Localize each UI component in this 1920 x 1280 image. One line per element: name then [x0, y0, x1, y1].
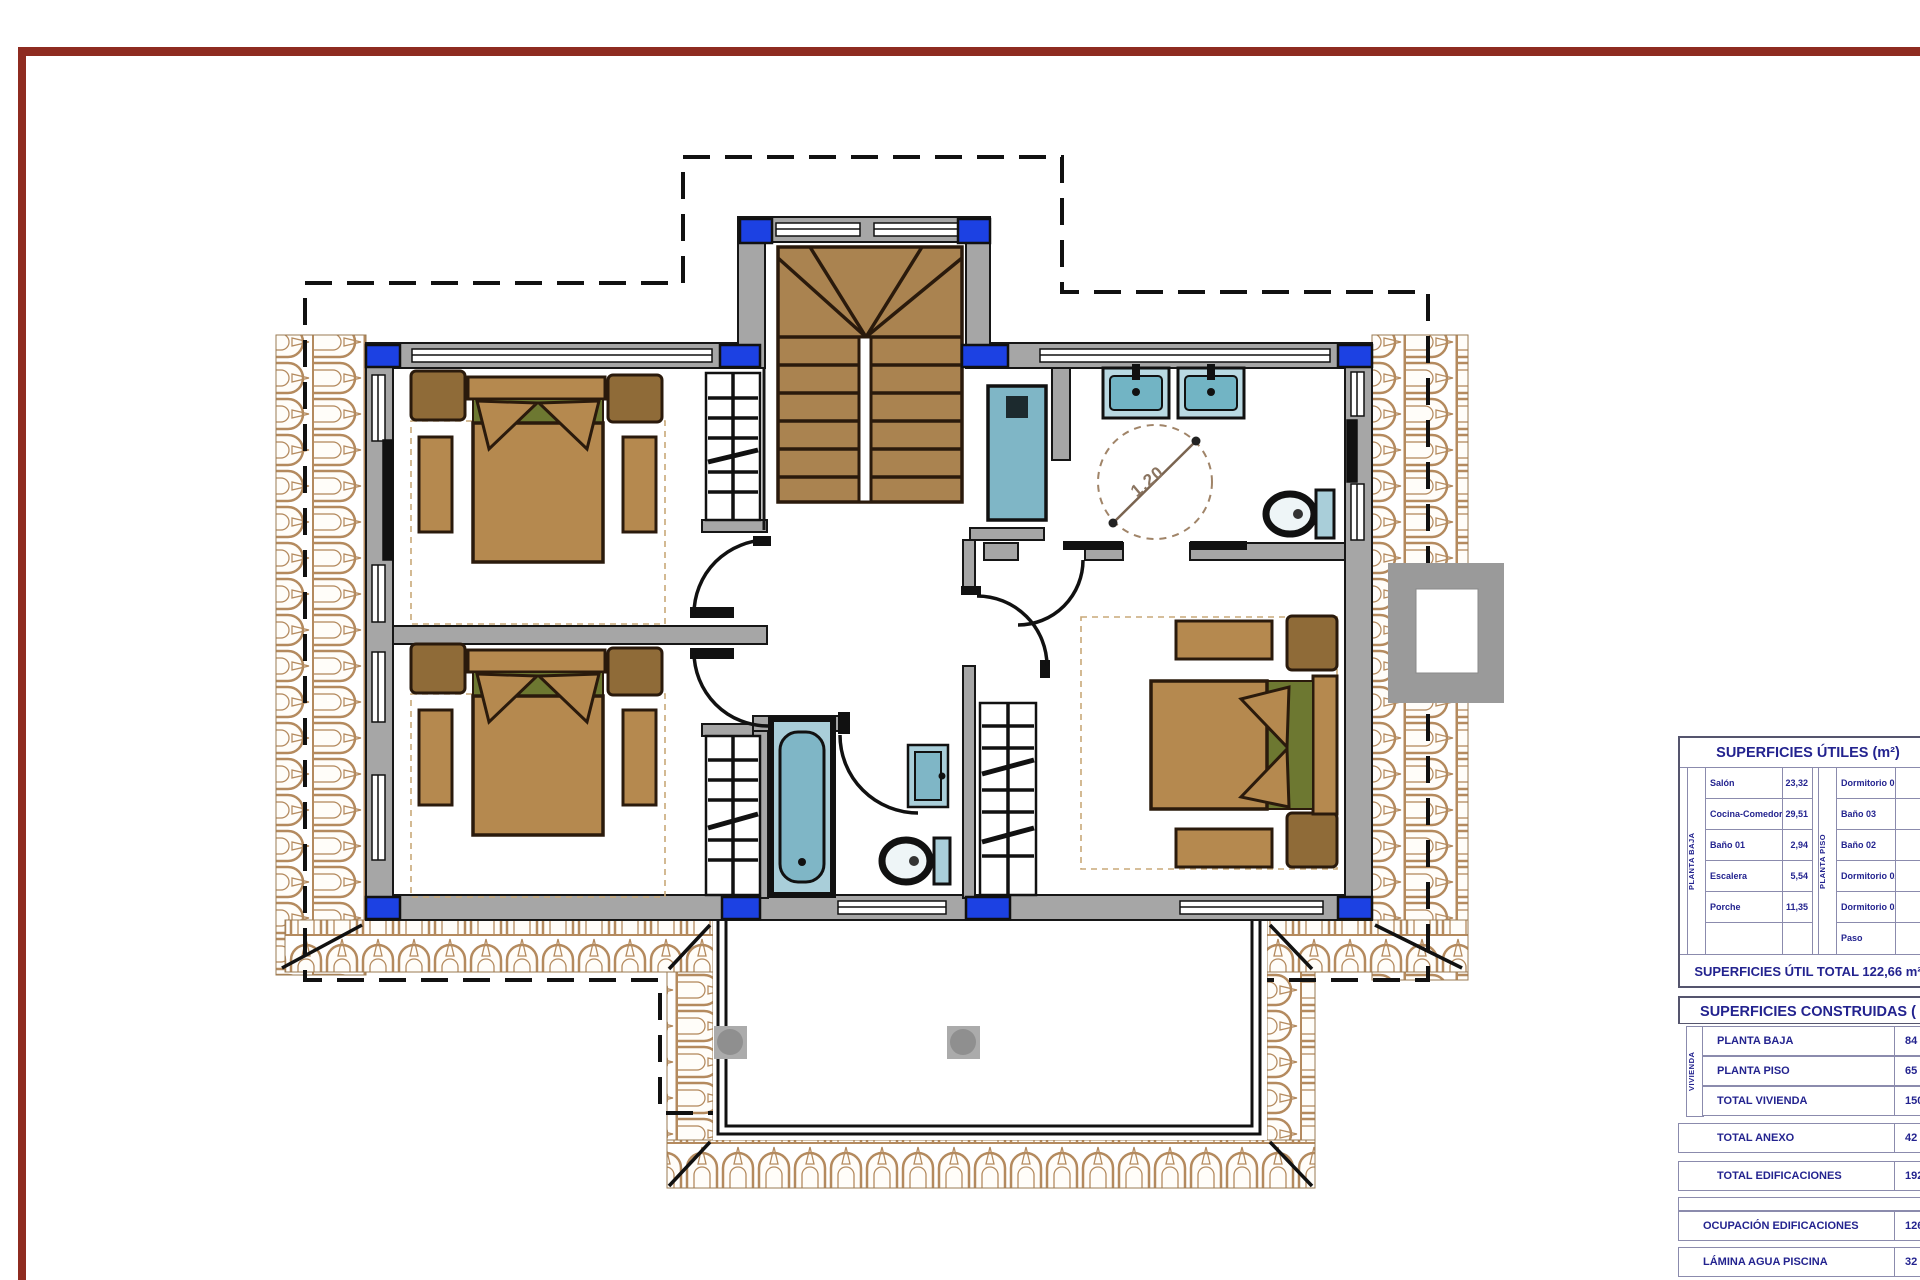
bed-dormitorio-02 [411, 371, 665, 624]
utiles-group-planta-baja: PLANTA BAJA [1687, 768, 1705, 954]
room-label: Dormitorio 03 [1836, 892, 1895, 923]
superficies-utiles-table: SUPERFICIES ÚTILES (m²) PLANTA BAJA PLAN… [1678, 736, 1920, 990]
construidas-row-value: 32 [1894, 1248, 1920, 1276]
construidas-row-label: LÁMINA AGUA PISCINA [1679, 1248, 1828, 1276]
utiles-total: SUPERFICIES ÚTIL TOTAL 122,66 m² [1680, 954, 1920, 989]
shower-tray [988, 386, 1046, 520]
porch-column [714, 1026, 747, 1059]
construidas-row-label: PLANTA PISO [1703, 1057, 1790, 1085]
wardrobe [706, 373, 760, 520]
utiles-group-planta-piso: PLANTA PISO [1818, 768, 1836, 954]
washbasin [908, 745, 948, 807]
construidas-row-value: 126 [1894, 1212, 1920, 1240]
room-area: 11,35 [1782, 892, 1812, 923]
utiles-title: SUPERFICIES ÚTILES (m²) [1680, 738, 1920, 768]
room-label: Baño 01 [1705, 830, 1782, 861]
construidas-row-label: TOTAL ANEXO [1679, 1124, 1794, 1152]
construidas-spacer-row [1678, 1197, 1920, 1211]
construidas-row-label: TOTAL VIVIENDA [1703, 1087, 1807, 1115]
turning-circle-annotation: 1.20 [1098, 425, 1212, 539]
construidas-row-label: TOTAL EDIFICACIONES [1679, 1162, 1842, 1190]
bed-dormitorio-03 [411, 644, 665, 897]
room-label: Porche [1705, 892, 1782, 923]
room-area: 23,32 [1782, 768, 1812, 799]
room-label: Salón [1705, 768, 1782, 799]
room-label: Cocina-Comedor [1705, 799, 1782, 830]
chimney [1388, 563, 1504, 703]
construidas-row-value: 192 [1894, 1162, 1920, 1190]
room-label: Dormitorio 02 [1836, 861, 1895, 892]
porch [713, 920, 1267, 1140]
room-area: 5,54 [1782, 861, 1812, 892]
construidas-row-label: PLANTA BAJA [1703, 1027, 1793, 1055]
construidas-row-value: 84 [1894, 1027, 1920, 1055]
wardrobe [980, 703, 1036, 895]
construidas-row-value: 65 [1894, 1057, 1920, 1085]
toilet [1266, 490, 1334, 538]
construidas-row-value: 150 [1894, 1087, 1920, 1115]
wardrobe [706, 736, 760, 895]
bathtub [768, 716, 836, 898]
room-label: Escalera [1705, 861, 1782, 892]
double-washbasins [1103, 364, 1244, 418]
room-area: 29,51 [1782, 799, 1812, 830]
floorplan-sheet: { "plan": { "turning_circle_label": "1.2… [0, 0, 1920, 1280]
construidas-row-label: OCUPACIÓN EDIFICACIONES [1679, 1212, 1859, 1240]
porch-column [947, 1026, 980, 1059]
room-label: Dormitorio 01 [1836, 768, 1895, 799]
room-label: Baño 03 [1836, 799, 1895, 830]
room-label: Paso [1836, 923, 1895, 954]
floor-plan-drawing: 1.20 [0, 0, 1920, 1280]
bed-dormitorio-01 [1081, 616, 1337, 869]
turning-circle-label: 1.20 [1127, 462, 1168, 500]
room-label: Baño 02 [1836, 830, 1895, 861]
superficies-construidas-table: SUPERFICIES CONSTRUIDAS ( VIVIENDA PLANT… [1678, 996, 1920, 1280]
toilet [882, 838, 950, 884]
staircase [778, 247, 962, 502]
room-area: 2,94 [1782, 830, 1812, 861]
construidas-row-value: 42 [1894, 1124, 1920, 1152]
construidas-title: SUPERFICIES CONSTRUIDAS ( [1680, 998, 1920, 1026]
